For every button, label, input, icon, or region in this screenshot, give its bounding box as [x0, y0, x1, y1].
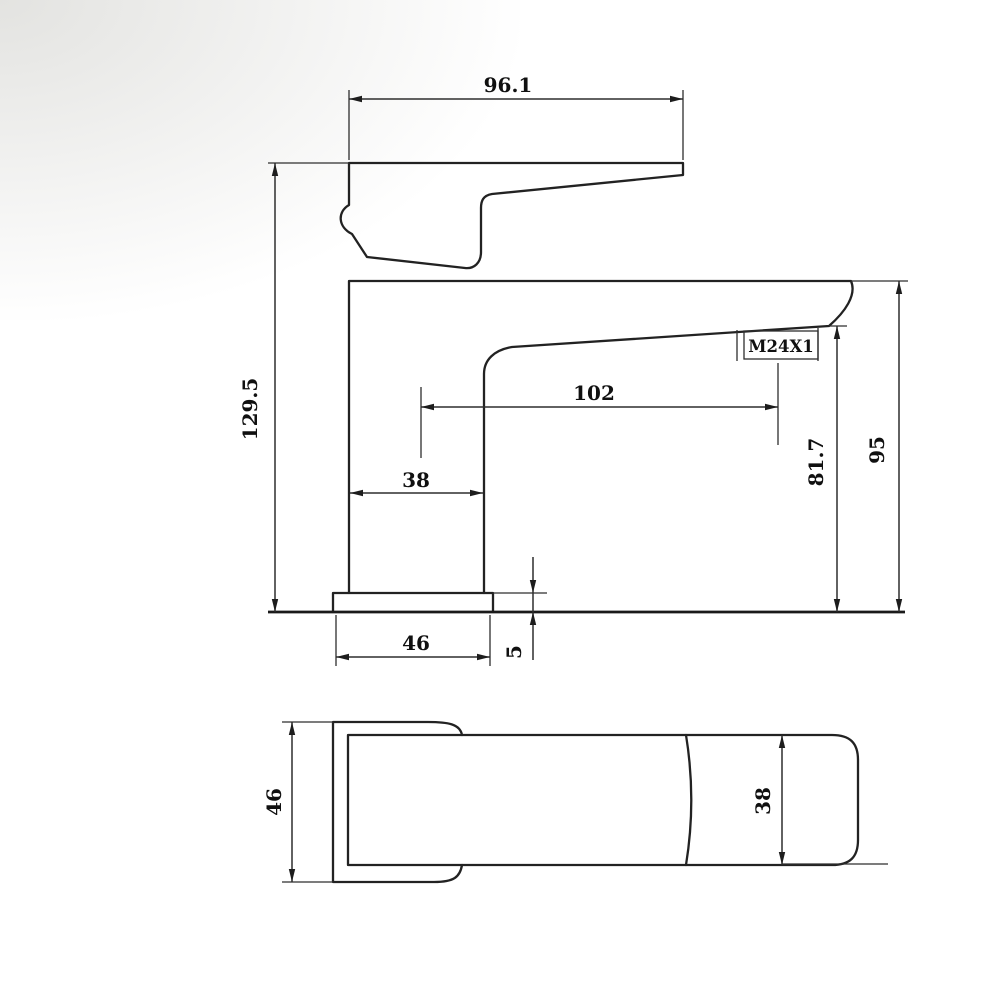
dim-base-depth-label: 46: [262, 788, 286, 816]
body-and-spout-outline: [349, 281, 853, 593]
plan-base-outline: [333, 722, 462, 882]
dim-body-width-label: 38: [402, 468, 430, 492]
arrowhead: [350, 490, 363, 496]
arrowhead: [896, 599, 902, 612]
dim-body-height: 95: [851, 281, 908, 612]
dim-spout-reach-label: 102: [573, 381, 615, 405]
arrowhead: [779, 852, 785, 865]
faucet-technical-drawing: M24X1 96.1 129.5: [0, 0, 1000, 1000]
arrowhead: [272, 163, 278, 176]
dim-handle-width-label: 38: [751, 787, 775, 815]
arrowhead: [289, 869, 295, 882]
arrowhead: [530, 580, 536, 593]
arrowhead: [421, 404, 434, 410]
arrowhead: [349, 96, 362, 102]
arrowhead: [477, 654, 490, 660]
dim-base-depth: 46: [262, 722, 333, 882]
dim-spout-reach: 102: [421, 363, 778, 458]
plan-view: 46 38: [262, 722, 888, 882]
dim-base-thickness: 5: [493, 557, 547, 660]
outlet-thread-label: M24X1: [748, 337, 814, 356]
arrowhead: [470, 490, 483, 496]
arrowhead: [530, 612, 536, 625]
dim-body-height-label: 95: [865, 436, 889, 464]
arrowhead: [834, 599, 840, 612]
base-flange-outline: [333, 593, 493, 612]
arrowhead: [670, 96, 683, 102]
arrowhead: [779, 735, 785, 748]
arrowhead: [765, 404, 778, 410]
arrowhead: [834, 326, 840, 339]
dim-base-width: 46: [336, 615, 490, 666]
dim-overall-height: 129.5: [238, 163, 349, 612]
plan-lever-divider-line: [686, 735, 691, 865]
arrowhead: [896, 281, 902, 294]
arrowhead: [289, 722, 295, 735]
dim-outlet-height: 81.7: [804, 326, 847, 612]
handle-lever-outline: [341, 163, 683, 268]
dim-handle-length-label: 96.1: [484, 73, 533, 97]
arrowhead: [336, 654, 349, 660]
dim-outlet-height-label: 81.7: [804, 438, 828, 487]
front-elevation-view: M24X1 96.1 129.5: [238, 73, 908, 666]
dim-base-width-label: 46: [402, 631, 430, 655]
dim-body-width: 38: [350, 468, 483, 496]
dim-handle-length: 96.1: [349, 73, 683, 160]
dim-overall-height-label: 129.5: [238, 378, 262, 441]
arrowhead: [272, 599, 278, 612]
dim-base-thickness-label: 5: [502, 645, 526, 659]
dim-handle-width: 38: [751, 735, 888, 865]
drawing-sheet: M24X1 96.1 129.5: [0, 0, 1000, 1000]
